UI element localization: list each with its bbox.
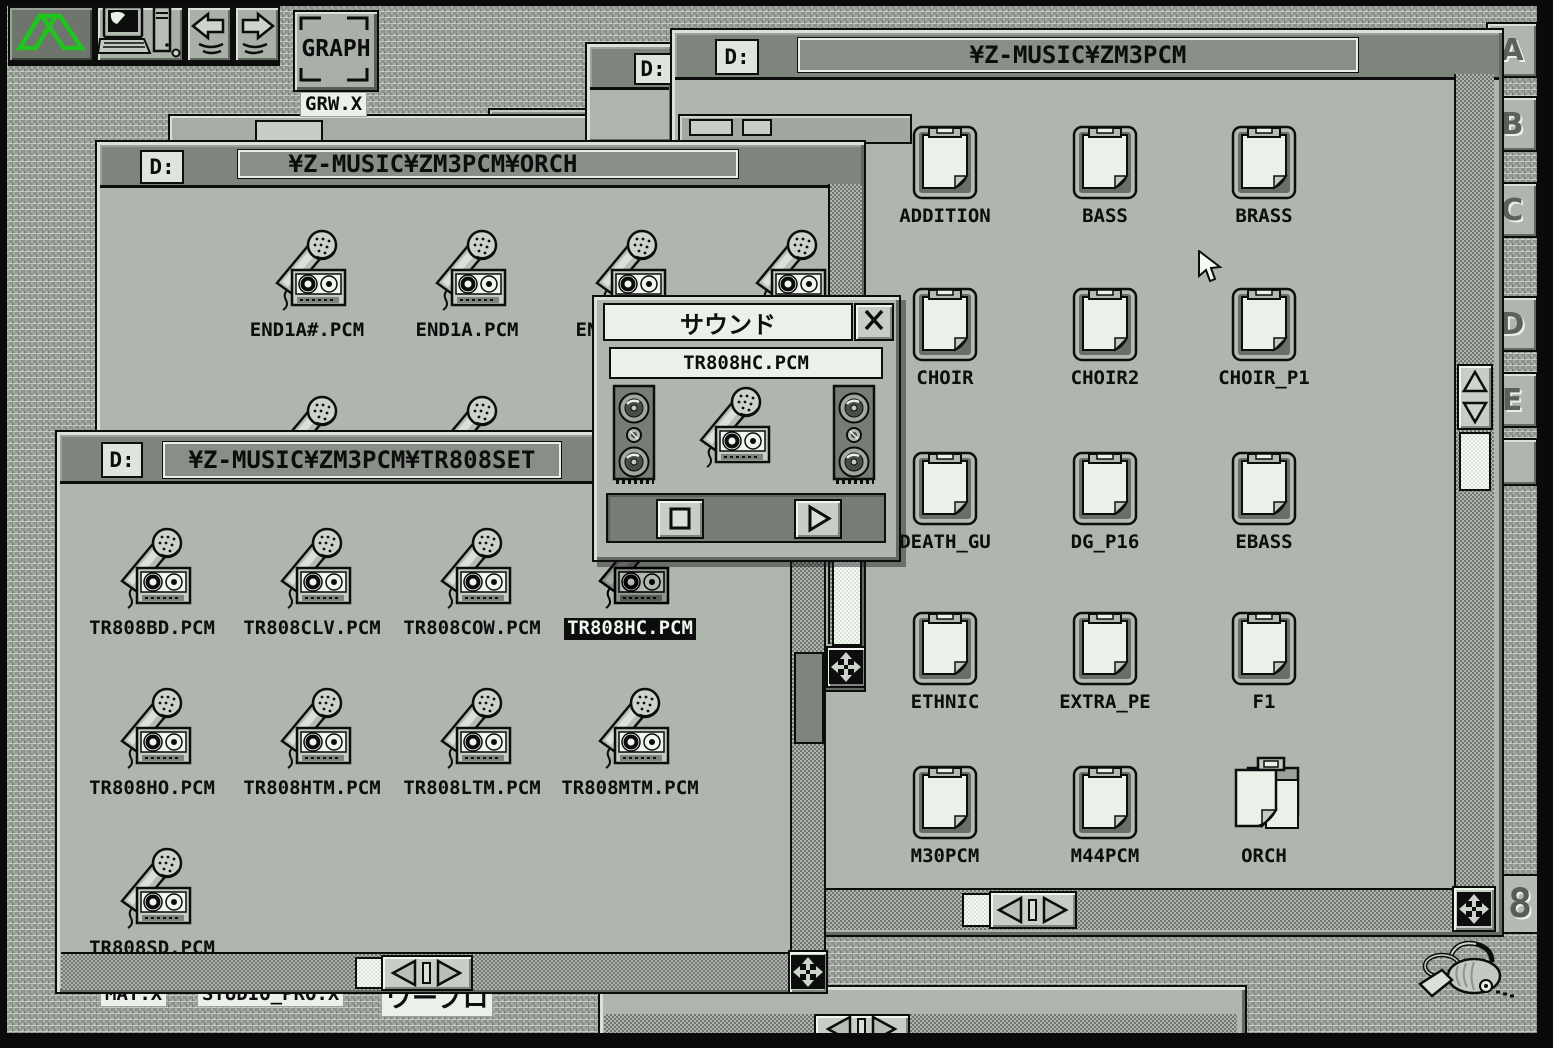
clipboard-icon xyxy=(1231,284,1297,366)
window-button xyxy=(689,119,733,136)
microphone-cassette-icon xyxy=(110,526,194,616)
vacuum-cleaner-icon[interactable] xyxy=(1412,928,1516,1012)
clipboard-icon xyxy=(1231,122,1297,204)
x-icon xyxy=(859,306,889,338)
mouse-cursor xyxy=(1197,250,1223,288)
clipboard-icon xyxy=(1072,608,1138,690)
clipboard-icon xyxy=(912,122,978,204)
sx-logo-icon xyxy=(12,7,90,61)
microphone-cassette-icon xyxy=(588,686,672,776)
dialog-title: サウンド xyxy=(603,303,853,341)
graph-caption: GRW.X xyxy=(300,92,367,117)
dir-icon-orch-open[interactable]: ORCH xyxy=(1189,756,1339,868)
screen-edge-bottom xyxy=(0,1033,1553,1048)
microphone-cassette-icon xyxy=(425,228,509,318)
pcm-icon-tr808bd[interactable]: TR808BD.PCM xyxy=(77,526,227,640)
microphone-cassette-icon xyxy=(270,686,354,776)
dir-icon-extra-pe[interactable]: EXTRA_PE xyxy=(1030,608,1180,714)
resize-grip[interactable] xyxy=(1452,886,1496,932)
drive-button[interactable]: D: xyxy=(101,442,143,478)
pcm-icon-end1a-sharp[interactable]: END1A#.PCM xyxy=(232,228,382,342)
microphone-cassette-icon xyxy=(689,385,801,475)
scroll-arrows[interactable] xyxy=(989,891,1077,929)
clipboard-icon xyxy=(912,608,978,690)
dir-icon-dg-p16[interactable]: DG_P16 xyxy=(1030,448,1180,554)
titlebar[interactable]: D: ¥Z-MUSIC¥ZM3PCM¥ORCH xyxy=(100,145,861,188)
horizontal-scrollbar[interactable] xyxy=(61,952,790,990)
graph-label: GRAPH xyxy=(295,36,377,62)
clipboard-icon xyxy=(1231,608,1297,690)
clipboard-icon xyxy=(1072,762,1138,844)
scrollbar-thumb[interactable] xyxy=(355,957,383,989)
speaker-icon xyxy=(612,384,658,490)
clipboard-icon xyxy=(1231,448,1297,530)
speaker-icon xyxy=(832,384,878,490)
pcm-icon-tr808cow[interactable]: TR808COW.PCM xyxy=(397,526,547,640)
microphone-cassette-icon xyxy=(265,228,349,318)
microphone-cassette-icon xyxy=(430,686,514,776)
pcm-icon-end1a[interactable]: END1A.PCM xyxy=(392,228,542,342)
stop-button[interactable] xyxy=(656,499,704,539)
graph-launcher[interactable]: GRAPH xyxy=(293,10,379,92)
dir-icon-m44pcm[interactable]: M44PCM xyxy=(1030,762,1180,868)
transport-bar xyxy=(606,493,886,543)
screen-edge-left xyxy=(0,0,7,1048)
resize-grip[interactable] xyxy=(826,646,866,688)
scrollbar-thumb[interactable] xyxy=(832,550,862,646)
screen-edge-right xyxy=(1537,0,1553,1048)
clipboard-icon xyxy=(912,448,978,530)
scroll-arrows[interactable] xyxy=(1457,364,1493,430)
pcm-icon-tr808htm[interactable]: TR808HTM.PCM xyxy=(237,686,387,800)
microphone-cassette-icon xyxy=(110,686,194,776)
filename-field[interactable]: TR808HC.PCM xyxy=(609,347,883,379)
arrow-right-icon xyxy=(237,6,277,62)
scroll-arrows[interactable] xyxy=(381,955,473,991)
dir-icon-brass[interactable]: BRASS xyxy=(1189,122,1339,228)
close-button[interactable] xyxy=(854,303,894,341)
pcm-icon-tr808ho[interactable]: TR808HO.PCM xyxy=(77,686,227,800)
window-title: ¥Z-MUSIC¥ZM3PCM¥ORCH xyxy=(238,150,738,178)
scrollbar-thumb[interactable] xyxy=(1459,432,1491,491)
clipboard-icon xyxy=(912,284,978,366)
dir-icon-ebass[interactable]: EBASS xyxy=(1189,448,1339,554)
horizontal-scrollbar[interactable] xyxy=(604,1014,1237,1034)
pcm-icon-tr808ltm[interactable]: TR808LTM.PCM xyxy=(397,686,547,800)
screen-edge-top xyxy=(0,0,1553,6)
toolbar xyxy=(8,6,280,66)
resize-grip[interactable] xyxy=(788,950,828,994)
titlebar[interactable]: D: xyxy=(590,47,669,90)
drive-button[interactable]: D: xyxy=(715,39,759,75)
drive-button[interactable]: D: xyxy=(634,53,672,85)
microphone-cassette-icon xyxy=(430,526,514,616)
computer-button[interactable] xyxy=(96,6,184,62)
microphone-cassette-icon xyxy=(110,846,194,936)
titlebar[interactable]: D: ¥Z-MUSIC¥ZM3PCM xyxy=(675,33,1499,80)
copy-left-button[interactable] xyxy=(186,6,232,62)
arrow-left-icon xyxy=(189,6,229,62)
scrollbar-thumb[interactable] xyxy=(962,893,992,927)
microphone-cassette-icon xyxy=(270,526,354,616)
scrollbar-thumb[interactable] xyxy=(794,652,824,744)
sound-dialog[interactable]: サウンド TR808HC.PCM xyxy=(592,295,901,562)
dir-icon-f1[interactable]: F1 xyxy=(1189,608,1339,714)
dir-icon-choir-p1[interactable]: CHOIR_P1 xyxy=(1189,284,1339,390)
background-window[interactable]: D: xyxy=(585,42,674,144)
pcm-icon-tr808sd[interactable]: TR808SD.PCM xyxy=(77,846,227,960)
clipboard-icon xyxy=(1072,122,1138,204)
window-title: ¥Z-MUSIC¥ZM3PCM¥TR808SET xyxy=(163,442,561,478)
open-clipboard-icon xyxy=(1222,756,1306,844)
dir-icon-m30pcm[interactable]: M30PCM xyxy=(870,762,1020,868)
pcm-icon-tr808mtm[interactable]: TR808MTM.PCM xyxy=(555,686,705,800)
desktop: D: 8 A B C D E MAT.X STUDIO_PRO.X ワープロ D… xyxy=(0,0,1553,1048)
vertical-scrollbar[interactable] xyxy=(1454,74,1494,888)
window-title: ¥Z-MUSIC¥ZM3PCM xyxy=(798,38,1358,72)
play-button[interactable] xyxy=(794,499,842,539)
dir-icon-choir2[interactable]: CHOIR2 xyxy=(1030,284,1180,390)
clipboard-icon xyxy=(1072,448,1138,530)
sx-window-logo-button[interactable] xyxy=(8,6,94,62)
copy-right-button[interactable] xyxy=(234,6,280,62)
clipboard-icon xyxy=(912,762,978,844)
drive-button[interactable]: D: xyxy=(140,150,184,184)
dir-icon-ethnic[interactable]: ETHNIC xyxy=(870,608,1020,714)
dir-icon-bass[interactable]: BASS xyxy=(1030,122,1180,228)
clipboard-icon xyxy=(1072,284,1138,366)
pcm-icon-tr808clv[interactable]: TR808CLV.PCM xyxy=(237,526,387,640)
computer-icon xyxy=(98,5,182,63)
window-button xyxy=(742,119,772,136)
